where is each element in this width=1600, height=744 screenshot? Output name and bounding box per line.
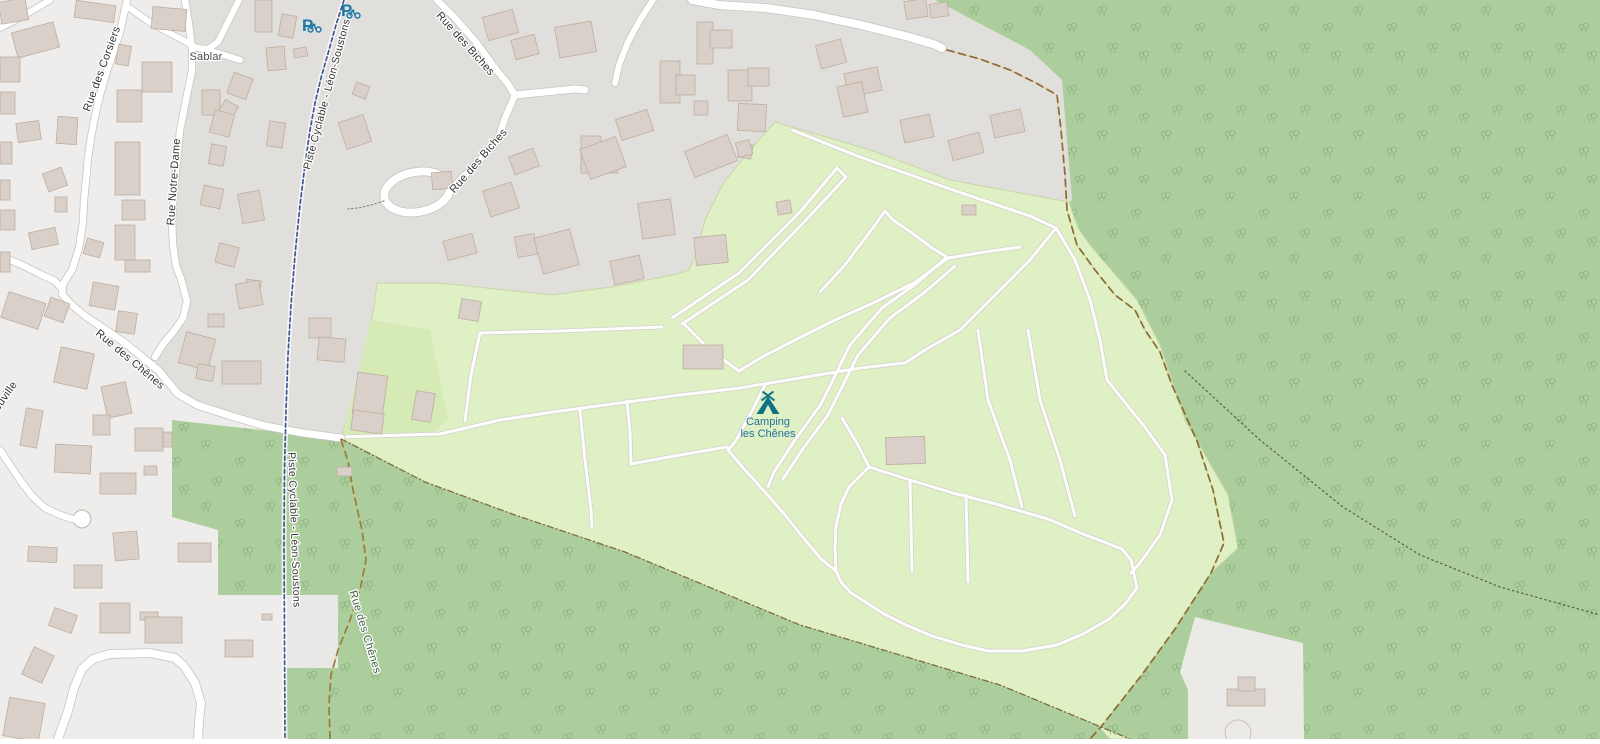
svg-text:les Chênes: les Chênes	[740, 428, 796, 440]
svg-text:Camping: Camping	[746, 416, 790, 428]
svg-text:Sablar: Sablar	[190, 51, 223, 63]
